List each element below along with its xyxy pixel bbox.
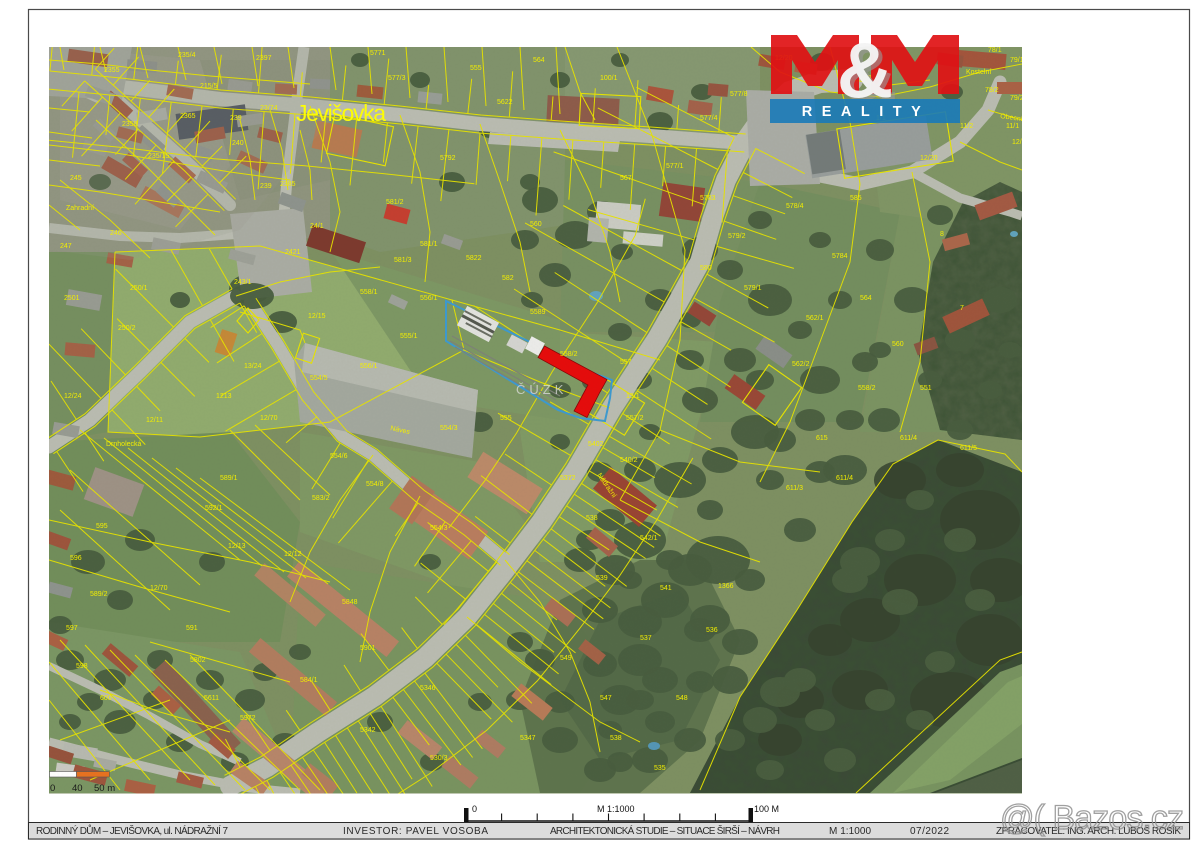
svg-text:@( Bazos.cz: @( Bazos.cz xyxy=(1000,799,1184,837)
svg-text:0: 0 xyxy=(472,804,477,814)
svg-text:M 1:1000: M 1:1000 xyxy=(597,804,635,814)
svg-text:REALITY: REALITY xyxy=(802,104,931,120)
svg-text:INVESTOR: PAVEL VOSOBA: INVESTOR: PAVEL VOSOBA xyxy=(343,826,488,837)
svg-text:100 M: 100 M xyxy=(754,804,779,814)
svg-text:RODINNÝ DŮM – JEVIŠOVKA, ul. N: RODINNÝ DŮM – JEVIŠOVKA, ul. NÁDRAŽNÍ 7 xyxy=(36,824,228,837)
svg-text:M 1:1000: M 1:1000 xyxy=(829,826,871,837)
svg-text:07/2022: 07/2022 xyxy=(910,826,949,837)
svg-text:ARCHITEKTONICKÁ STUDIE – SITUA: ARCHITEKTONICKÁ STUDIE – SITUACE ŠIRŠÍ –… xyxy=(550,824,780,837)
